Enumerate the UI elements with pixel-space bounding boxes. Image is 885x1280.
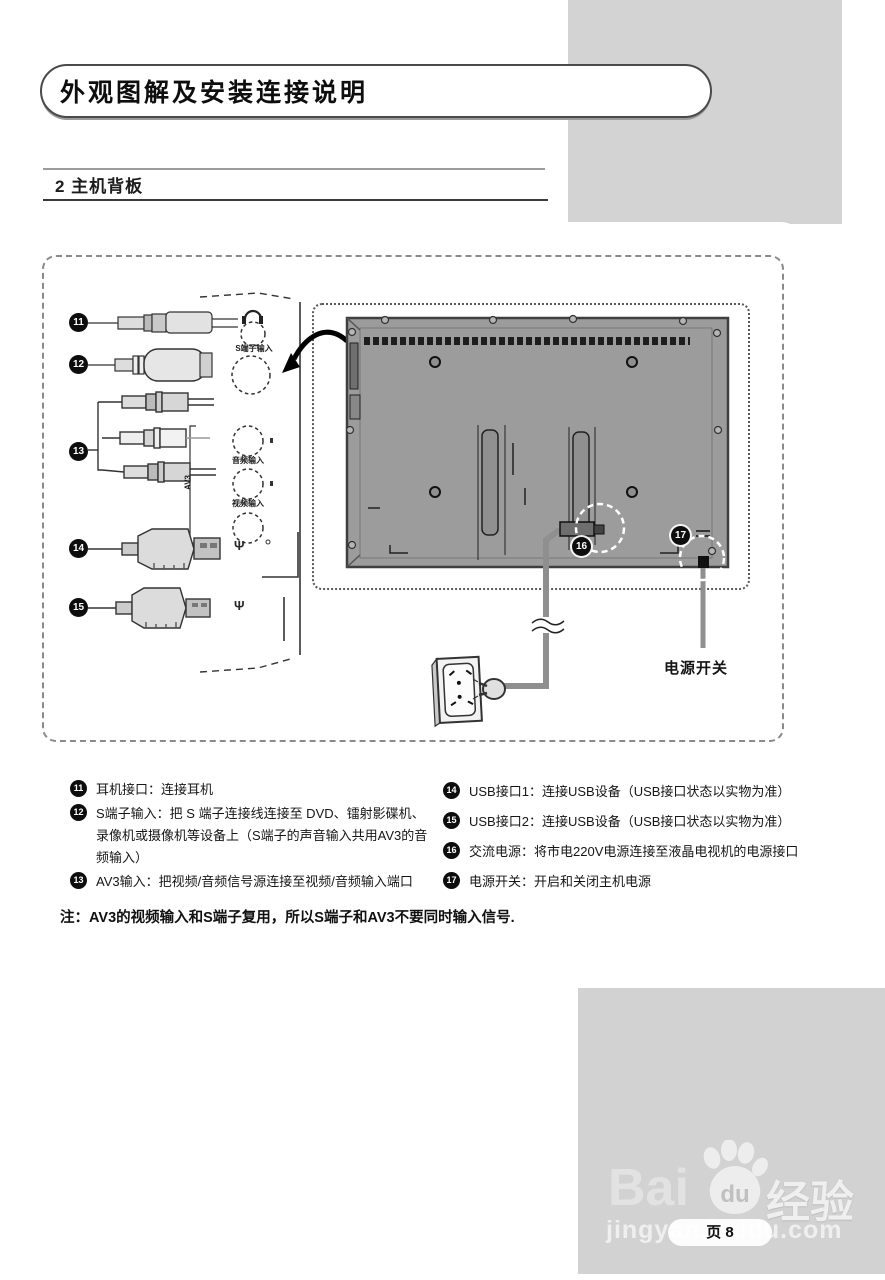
badge-15: 15	[69, 598, 88, 617]
legend-text-14: USB接口1：连接USB设备（USB接口状态以实物为准）	[469, 781, 833, 803]
legend-text-17: 电源开关：开启和关闭主机电源	[469, 871, 833, 893]
audio-jack-r	[233, 469, 263, 499]
badge-14: 14	[69, 539, 88, 558]
wall-outlet-art	[432, 657, 482, 726]
headphone-plug-art	[88, 312, 238, 333]
heading-rule-bottom	[43, 199, 548, 201]
legend-item-13: 13 AV3输入：把视频/音频信号源连接至视频/音频输入端口	[70, 871, 450, 893]
arrow-to-strip	[282, 332, 347, 373]
legend-item-14: 14 USB接口1：连接USB设备（USB接口状态以实物为准）	[443, 781, 833, 803]
section-heading: 2 主机背板	[55, 172, 143, 197]
legend-badge-16: 16	[443, 842, 460, 859]
label-audio-in: 音频输入	[222, 455, 274, 466]
badge-11: 11	[69, 313, 88, 332]
rca-plug-1	[98, 392, 214, 412]
usb1-symbol-icon: Ψ	[234, 538, 245, 553]
legend-text-16: 交流电源：将市电220V电源连接至液晶电视机的电源接口	[469, 841, 833, 863]
rca-plug-3	[102, 462, 216, 482]
legend-item-12: 12 S端子输入：把 S 端子连接线连接至 DVD、镭射影碟机、录像机或摄像机等…	[70, 803, 432, 869]
badge-13: 13	[69, 442, 88, 461]
manual-page: 外观图解及安装连接说明 2 主机背板	[0, 0, 885, 1280]
legend-badge-15: 15	[443, 812, 460, 829]
legend-badge-13: 13	[70, 872, 87, 889]
legend-text-11: 耳机接口：连接耳机	[96, 779, 430, 801]
usb1-bracket	[262, 532, 298, 577]
tv-back-panel-art	[347, 316, 729, 568]
page-number-pill: 页 8	[668, 1219, 772, 1246]
usb2-symbol-icon: Ψ	[234, 598, 245, 613]
baidu-logo-text: Bai	[608, 1158, 689, 1218]
badge-17: 17	[671, 526, 690, 545]
legend-badge-12: 12	[70, 804, 87, 821]
legend-item-17: 17 电源开关：开启和关闭主机电源	[443, 871, 833, 893]
rca-plug-2	[102, 428, 210, 448]
badge-12: 12	[69, 355, 88, 374]
rca-cables-art	[88, 392, 216, 482]
badge-16: 16	[572, 537, 591, 556]
s-video-plug-art	[88, 349, 212, 381]
legend-badge-14: 14	[443, 782, 460, 799]
audio-jack-l	[233, 426, 263, 456]
label-av3: AV3	[184, 471, 193, 495]
s-video-jack	[232, 356, 270, 394]
legend-item-16: 16 交流电源：将市电220V电源连接至液晶电视机的电源接口	[443, 841, 833, 863]
legend-badge-11: 11	[70, 780, 87, 797]
label-s-video-in: S端子输入	[226, 343, 282, 354]
legend-text-12: S端子输入：把 S 端子连接线连接至 DVD、镭射影碟机、录像机或摄像机等设备上…	[96, 803, 432, 869]
usb-plug-1-art	[88, 529, 220, 569]
heading-rule-top	[43, 168, 545, 170]
label-video-in: 视频输入	[222, 498, 274, 509]
page-title: 外观图解及安装连接说明	[42, 73, 368, 109]
legend-text-13: AV3输入：把视频/音频信号源连接至视频/音频输入端口	[96, 871, 450, 893]
baidu-du-text: du	[720, 1181, 749, 1208]
power-switch-label: 电源开关	[664, 657, 728, 678]
baidu-paw-icon: du	[698, 1140, 772, 1222]
legend-item-11: 11 耳机接口：连接耳机	[70, 779, 430, 801]
legend-item-15: 15 USB接口2：连接USB设备（USB接口状态以实物为准）	[443, 811, 833, 833]
legend-badge-17: 17	[443, 872, 460, 889]
note-line: 注：AV3的视频输入和S端子复用，所以S端子和AV3不要同时输入信号.	[60, 906, 515, 927]
usb-plug-2-art	[88, 588, 210, 628]
legend-text-15: USB接口2：连接USB设备（USB接口状态以实物为准）	[469, 811, 833, 833]
title-bar: 外观图解及安装连接说明	[40, 64, 712, 118]
headphone-icon	[242, 311, 263, 324]
